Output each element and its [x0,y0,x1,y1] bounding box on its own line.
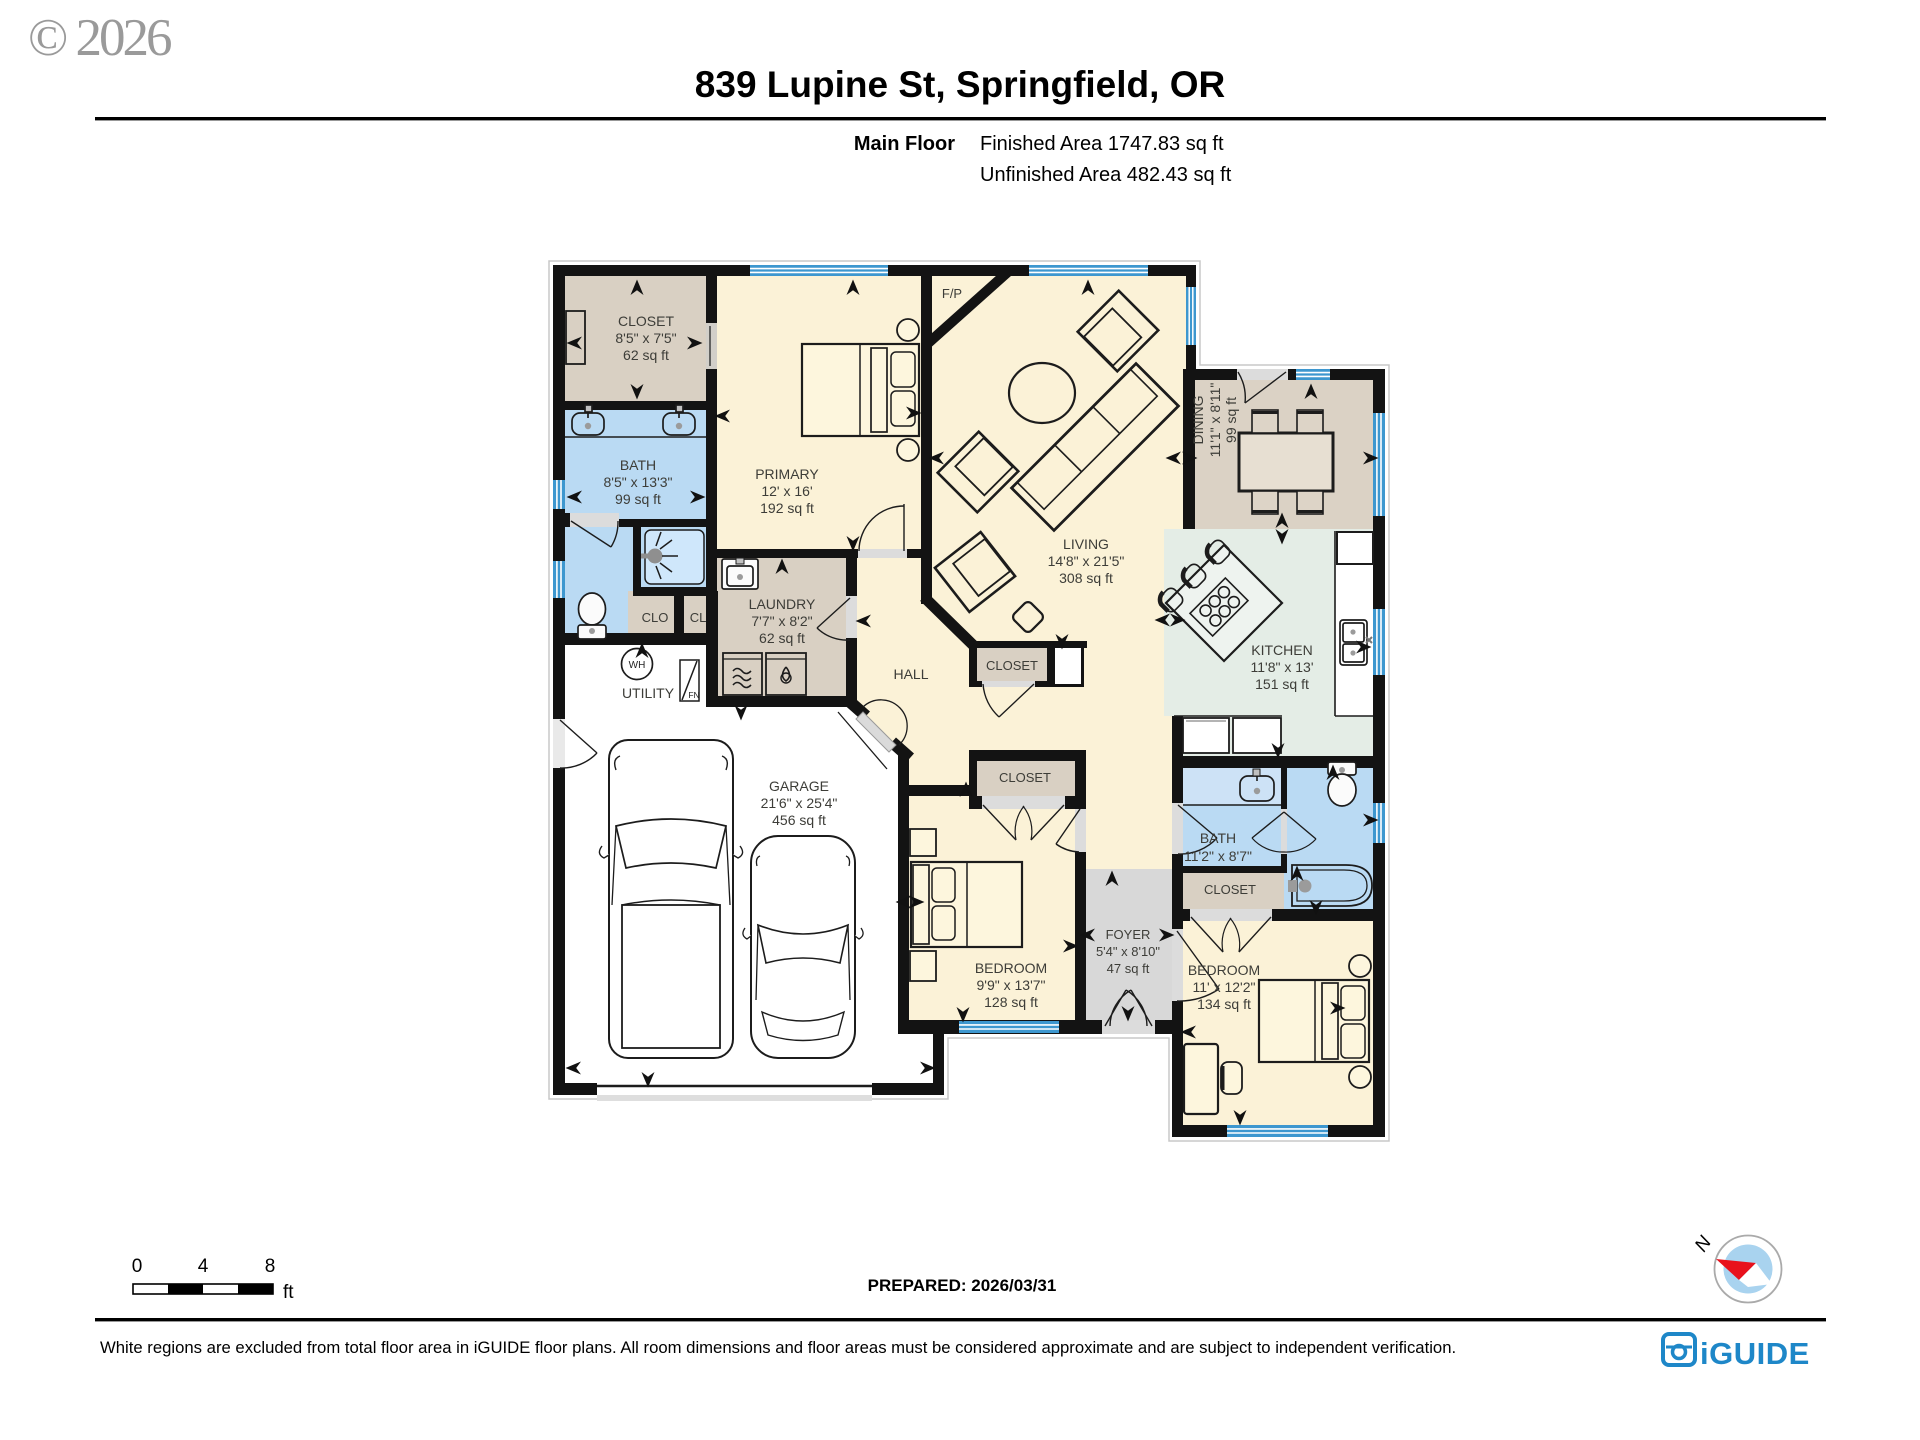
svg-text:DINING: DINING [1190,396,1206,445]
svg-text:FN: FN [688,690,699,700]
svg-text:GARAGE: GARAGE [769,778,829,794]
svg-text:LIVING: LIVING [1063,536,1109,552]
svg-text:Finished Area 1747.83 sq ft: Finished Area 1747.83 sq ft [980,133,1224,155]
svg-text:White regions are excluded fro: White regions are excluded from total fl… [100,1338,1456,1357]
svg-text:456 sq ft: 456 sq ft [772,812,826,828]
svg-text:21'6" x 25'4": 21'6" x 25'4" [761,795,838,811]
svg-text:0: 0 [132,1256,143,1277]
svg-text:9'9" x 13'7": 9'9" x 13'7" [977,977,1046,993]
svg-text:CLOSET: CLOSET [618,313,674,329]
svg-text:839 Lupine St, Springfield, OR: 839 Lupine St, Springfield, OR [695,64,1225,105]
svg-text:11'8" x 13': 11'8" x 13' [1251,659,1314,675]
svg-text:iGUIDE: iGUIDE [1700,1336,1810,1371]
svg-text:151 sq ft: 151 sq ft [1255,676,1309,692]
svg-text:CLOSET: CLOSET [999,770,1051,785]
svg-text:47 sq ft: 47 sq ft [1107,961,1150,976]
svg-text:7'7" x 8'2": 7'7" x 8'2" [751,613,812,629]
svg-text:11'1" x 8'11": 11'1" x 8'11" [1207,383,1223,458]
svg-text:8: 8 [265,1256,276,1277]
svg-text:LAUNDRY: LAUNDRY [749,596,816,612]
svg-text:Unfinished Area 482.43 sq ft: Unfinished Area 482.43 sq ft [980,164,1232,186]
svg-text:62 sq ft: 62 sq ft [759,630,805,646]
svg-text:PRIMARY: PRIMARY [755,466,819,482]
svg-text:4: 4 [198,1256,209,1277]
svg-text:CLO: CLO [642,610,669,625]
svg-text:PREPARED: 2026/03/31: PREPARED: 2026/03/31 [868,1276,1057,1295]
svg-text:CLOSET: CLOSET [1204,882,1256,897]
svg-text:WH: WH [629,660,646,671]
svg-text:ft: ft [283,1282,294,1303]
svg-text:62 sq ft: 62 sq ft [623,347,669,363]
svg-text:BEDROOM: BEDROOM [1188,962,1260,978]
svg-text:FOYER: FOYER [1106,927,1151,942]
svg-text:308 sq ft: 308 sq ft [1059,570,1113,586]
svg-text:8'5" x 7'5": 8'5" x 7'5" [615,330,676,346]
svg-text:134 sq ft: 134 sq ft [1197,996,1251,1012]
svg-text:5'4" x 8'10": 5'4" x 8'10" [1096,944,1160,959]
svg-text:KITCHEN: KITCHEN [1251,642,1312,658]
svg-text:14'8" x 21'5": 14'8" x 21'5" [1048,553,1125,569]
svg-text:12' x 16': 12' x 16' [761,483,812,499]
svg-text:11' x 12'2": 11' x 12'2" [1193,979,1256,995]
svg-text:© 2026: © 2026 [28,9,171,67]
svg-text:CLOSET: CLOSET [986,658,1038,673]
svg-text:CL: CL [690,610,707,625]
svg-text:99 sq ft: 99 sq ft [615,491,661,507]
svg-text:BATH: BATH [1200,830,1236,846]
svg-text:8'5" x 13'3": 8'5" x 13'3" [604,474,673,490]
svg-text:F/P: F/P [942,286,962,301]
svg-text:11'2" x 8'7": 11'2" x 8'7" [1184,848,1252,864]
svg-text:Main Floor: Main Floor [854,133,955,155]
svg-text:HALL: HALL [893,666,928,682]
svg-text:BATH: BATH [620,457,656,473]
svg-text:UTILITY: UTILITY [622,685,675,701]
svg-text:192 sq ft: 192 sq ft [760,500,814,516]
svg-text:BEDROOM: BEDROOM [975,960,1047,976]
svg-text:99 sq ft: 99 sq ft [1223,397,1239,443]
svg-text:128 sq ft: 128 sq ft [984,994,1038,1010]
